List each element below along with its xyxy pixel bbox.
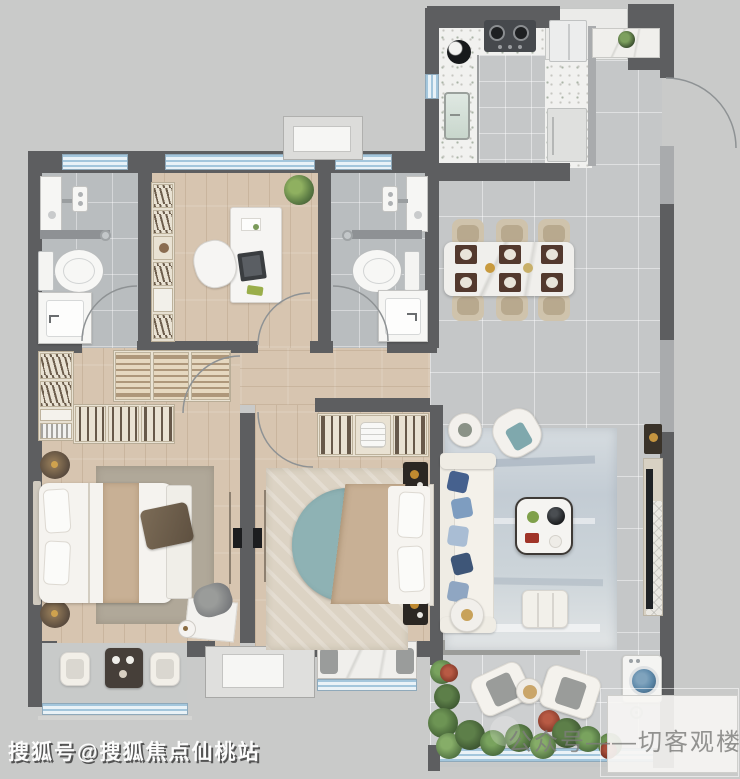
wall-right-stub — [660, 58, 674, 78]
sofa-pillow — [446, 470, 470, 494]
master-bed-runner — [103, 483, 139, 603]
balcony-plant-red — [440, 664, 458, 682]
balcony-table — [516, 678, 542, 704]
wall-h-seg-3 — [310, 341, 333, 353]
place-setting — [499, 245, 521, 264]
wall-h-seg-4 — [387, 341, 437, 353]
bath2-low-wall — [352, 230, 422, 239]
corridor-floor — [240, 348, 430, 405]
master-wardrobe-upper — [113, 350, 231, 402]
kitchen-sink — [444, 92, 470, 140]
table-dish — [523, 263, 533, 273]
watermark-bottom-right: 公众号——切客观楼市 — [508, 722, 740, 757]
master-bay-table — [105, 648, 143, 688]
study-plant — [284, 175, 314, 205]
place-setting — [541, 245, 563, 264]
entry-plant — [618, 31, 635, 48]
stove — [484, 20, 536, 52]
table-dish — [485, 263, 495, 273]
dining-chair — [452, 293, 484, 321]
bay-box-bedroom2-inner — [222, 654, 284, 688]
floor-plan-canvas: 公众号——切客观楼市 搜狐号@搜狐焦点仙桃站 — [0, 0, 740, 779]
master-tray — [178, 620, 196, 638]
bath1-vanity-panel — [40, 176, 62, 232]
wall-study-bath2 — [318, 166, 331, 348]
bedroom2-pillow-1 — [397, 491, 425, 538]
window-bathroom-1 — [62, 154, 128, 170]
place-setting — [455, 245, 477, 264]
sofa-armrest-top — [440, 453, 496, 469]
sofa-pillow — [450, 496, 473, 519]
master-pillow-2 — [43, 540, 71, 585]
bath2-drain — [342, 230, 353, 241]
master-nightstand-1 — [40, 451, 70, 479]
kitchen-appliance — [547, 108, 587, 162]
coffee-table — [515, 497, 573, 555]
sofa-pillow — [447, 525, 470, 548]
bath1-shower — [72, 186, 88, 212]
bedroom2-pillow-2 — [397, 545, 425, 592]
bath2-vanity — [378, 290, 428, 342]
tv-cabinet — [643, 458, 663, 616]
bath2-toilet-bowl — [352, 249, 402, 293]
window-kitchen — [425, 74, 439, 99]
wall-corridor-bedroom2 — [315, 398, 430, 412]
window-seat-glass — [317, 679, 417, 691]
dining-chair — [496, 293, 528, 321]
window-master-bay — [42, 703, 188, 715]
side-table-top — [448, 413, 482, 447]
living-tv — [646, 469, 653, 609]
window-seat-cushion-2 — [396, 648, 414, 674]
wall-right-dark-1 — [660, 204, 674, 340]
living-console — [644, 424, 662, 454]
master-bay-frame — [38, 716, 192, 720]
window-seat-cushion-1 — [320, 648, 338, 674]
place-setting — [455, 273, 477, 292]
master-bay-chair-2 — [150, 652, 180, 686]
watermark-bottom-left: 搜狐号@搜狐焦点仙桃站 — [8, 736, 260, 766]
bookshelf — [151, 182, 175, 342]
bay-box-top-inner — [293, 126, 351, 152]
bath1-vanity — [38, 292, 92, 344]
wall-bath1-study — [138, 166, 152, 348]
balcony-plant — [434, 684, 460, 710]
master-closet-shelves — [38, 351, 74, 441]
door-arc-entry — [666, 78, 736, 148]
burner-2 — [513, 25, 529, 41]
bedroom2-wardrobe — [317, 413, 429, 457]
burner-1 — [489, 25, 505, 41]
master-bay-chair-1 — [60, 652, 90, 686]
desk — [230, 207, 282, 303]
bath1-toilet-bowl — [54, 249, 104, 293]
bath2-toilet-tank — [404, 251, 420, 291]
master-tv-wall-trim — [229, 492, 231, 584]
refrigerator — [549, 20, 587, 62]
bath1-toilet-tank — [38, 251, 54, 291]
wall-kitchen-bottom — [427, 163, 570, 181]
master-wardrobe-hanging — [73, 404, 175, 444]
master-pillow-1 — [42, 488, 71, 534]
kitchen-floor — [477, 55, 545, 167]
ottoman — [522, 590, 568, 628]
dining-chair — [538, 293, 570, 321]
bath2-vanity-panel — [406, 176, 428, 232]
bath1-drain — [100, 230, 111, 241]
wall-right-light-2 — [660, 340, 674, 432]
place-setting — [499, 273, 521, 292]
side-table-bottom — [450, 598, 484, 632]
bedroom2-tv — [253, 528, 262, 548]
wall-right-light-1 — [660, 146, 674, 204]
bath2-shower — [382, 186, 398, 212]
master-tv — [233, 528, 242, 548]
kitchen-pot — [447, 40, 471, 64]
master-nightstand-2 — [40, 600, 70, 628]
place-setting — [541, 273, 563, 292]
